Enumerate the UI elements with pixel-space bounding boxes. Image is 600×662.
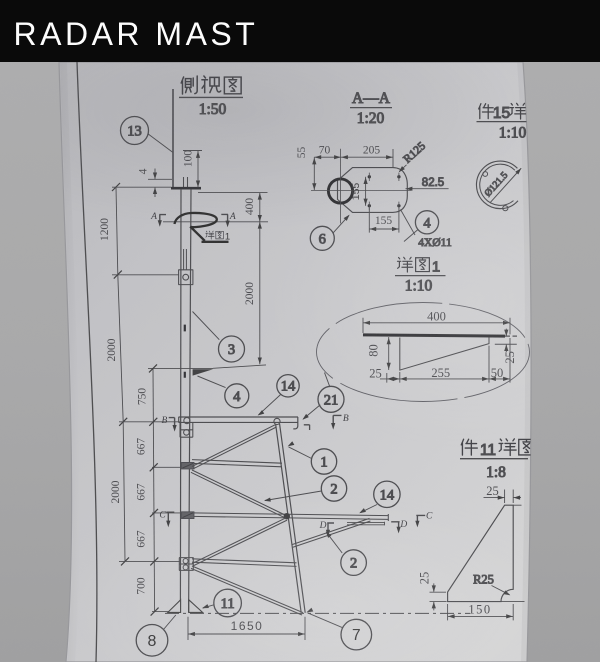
svg-text:RADAR MAST: RADAR MAST xyxy=(14,16,259,52)
